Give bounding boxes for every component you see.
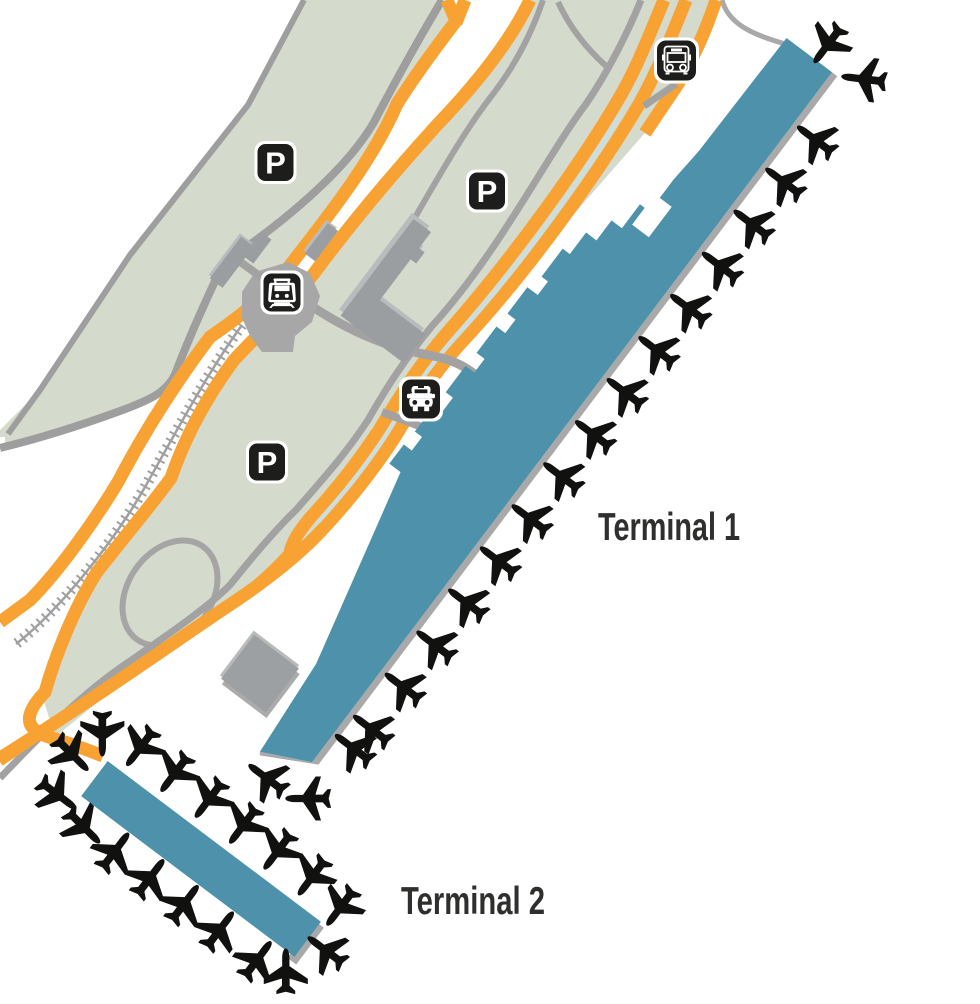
svg-text:Terminal 1: Terminal 1 (598, 506, 740, 549)
svg-text:Terminal 2: Terminal 2 (401, 880, 545, 923)
svg-text:P: P (265, 146, 286, 181)
